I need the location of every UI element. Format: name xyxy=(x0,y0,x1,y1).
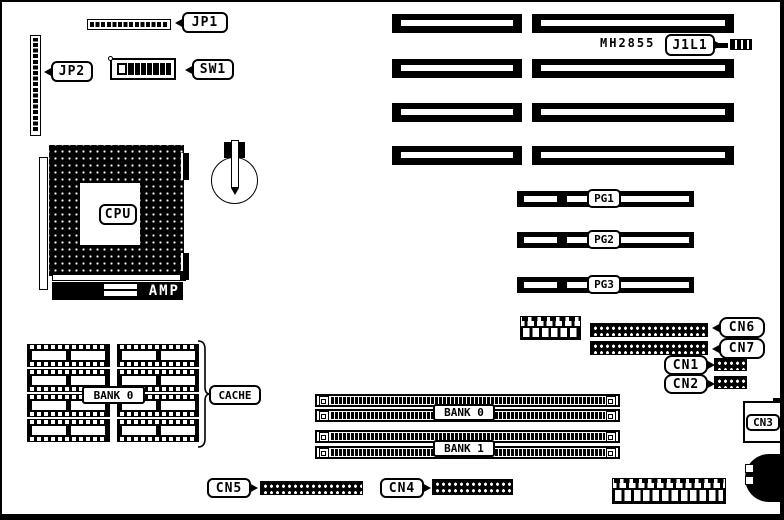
sw1-switch-off xyxy=(117,63,127,75)
sw1-switch xyxy=(147,63,152,75)
power-body xyxy=(613,488,725,503)
cache-chip xyxy=(122,426,156,435)
amp-top-bar xyxy=(52,274,183,281)
pg-stripe xyxy=(621,237,689,243)
cn5-header xyxy=(260,481,363,495)
jp2-label-text: JP2 xyxy=(59,64,85,79)
simm-bank1-label-text: BANK 1 xyxy=(444,442,484,455)
cpu-label-text: CPU xyxy=(105,207,131,222)
sw1-switch xyxy=(153,63,158,75)
expansion-slot xyxy=(532,59,734,78)
cache-chip xyxy=(32,401,66,410)
cn7-header xyxy=(590,341,708,355)
cache-chip xyxy=(161,351,195,360)
cn5-label-text: CN5 xyxy=(216,481,242,496)
simm-bank0-label-text: BANK 0 xyxy=(444,406,484,419)
simm-bank0-label: BANK 0 xyxy=(433,404,495,421)
pg1-label: PG1 xyxy=(587,189,621,208)
cache-bank0-label: BANK 0 xyxy=(82,386,145,404)
cn4-label: CN4 xyxy=(380,478,424,498)
sw1-switch xyxy=(141,63,146,75)
sw1-switch xyxy=(160,63,165,75)
cache-chip xyxy=(71,376,105,385)
pg3-label-text: PG3 xyxy=(594,278,614,291)
jp1-label-text: JP1 xyxy=(192,15,218,30)
amp-text: AMP xyxy=(149,283,180,299)
expansion-slot xyxy=(392,146,522,165)
sw1-switch xyxy=(166,63,171,75)
cpu-side-bar xyxy=(39,157,48,290)
pg3-label: PG3 xyxy=(587,275,621,294)
simm-latch-left xyxy=(319,448,329,458)
simm-contacts xyxy=(330,397,605,404)
cn5-pointer xyxy=(249,483,258,493)
cache-chip xyxy=(71,351,105,360)
j1l1-pointer xyxy=(713,40,722,50)
jp2-pointer xyxy=(44,67,53,77)
cn1-label-text: CN1 xyxy=(673,358,699,373)
cache-chip xyxy=(32,351,66,360)
cn2-header xyxy=(714,376,747,389)
sw1-dip-switch xyxy=(110,58,176,80)
simm-latch-right xyxy=(606,396,616,406)
cn7-label: CN7 xyxy=(719,338,765,359)
cpu-tab-top xyxy=(181,153,189,180)
power-connector-main xyxy=(612,478,726,504)
cn3-label-text: CN3 xyxy=(753,416,773,429)
motherboard-diagram: JP1 JP2 SW1 CPU AMP xyxy=(0,0,784,520)
battery-pin-tip xyxy=(231,188,239,195)
cache-bank0-label-text: BANK 0 xyxy=(94,389,134,402)
sw1-label-text: SW1 xyxy=(200,62,226,77)
cn5-label: CN5 xyxy=(207,478,251,498)
expansion-slot xyxy=(532,14,734,33)
pg-stripe xyxy=(524,282,557,288)
power-pins xyxy=(613,479,725,488)
cn4-header xyxy=(432,479,513,495)
cn2-pointer xyxy=(706,379,715,389)
cache-chip xyxy=(161,376,195,385)
cache-brace xyxy=(196,339,210,449)
pg-stripe xyxy=(524,196,557,202)
expansion-slot xyxy=(392,59,522,78)
din-hole xyxy=(745,464,754,473)
sw1-switch xyxy=(128,63,133,75)
cn3-label: CN3 xyxy=(746,414,780,431)
cn7-pointer xyxy=(712,344,721,354)
cache-label-text: CACHE xyxy=(218,389,251,402)
pg-stripe xyxy=(524,237,557,243)
amp-notch xyxy=(180,271,186,281)
cn6-label: CN6 xyxy=(719,317,765,338)
cache-chip xyxy=(161,426,195,435)
j1l1-connector xyxy=(730,39,752,50)
cpu-label: CPU xyxy=(99,204,137,225)
pg-stripe xyxy=(621,282,689,288)
battery-pin xyxy=(231,140,239,188)
simm-latch-left xyxy=(319,432,329,442)
cache-chip-block xyxy=(27,419,110,442)
cache-chip xyxy=(122,351,156,360)
cn6-pointer xyxy=(712,323,721,333)
expansion-slot xyxy=(392,14,522,33)
cache-chip xyxy=(71,426,105,435)
sw1-label: SW1 xyxy=(192,59,234,80)
simm-latch-right xyxy=(606,432,616,442)
power-connector-small xyxy=(520,316,581,340)
cache-chip-block xyxy=(117,344,199,367)
jp1-pin-strip xyxy=(87,19,171,30)
sw1-switch xyxy=(135,63,140,75)
pg-stripe xyxy=(567,282,588,288)
simm-latch-right xyxy=(606,411,616,421)
j1l1-label: J1L1 xyxy=(665,34,715,56)
expansion-slot xyxy=(532,103,734,122)
simm-latch-left xyxy=(319,396,329,406)
pg2-label-text: PG2 xyxy=(594,233,614,246)
pg-stripe xyxy=(567,196,588,202)
pg1-label-text: PG1 xyxy=(594,192,614,205)
amp-stripe xyxy=(104,284,137,289)
cn6-header xyxy=(590,323,708,337)
pg2-label: PG2 xyxy=(587,230,621,249)
sw1-pin1-dot xyxy=(108,56,113,61)
jp2-pin-strip xyxy=(30,35,41,136)
cn1-header xyxy=(714,358,747,371)
cn2-label: CN2 xyxy=(664,374,708,394)
cache-chip xyxy=(32,376,66,385)
cn4-label-text: CN4 xyxy=(389,481,415,496)
sw1-pointer xyxy=(185,65,194,75)
cn7-label-text: CN7 xyxy=(729,341,755,356)
cache-chip xyxy=(122,376,156,385)
chip-mh2855-text: MH2855 xyxy=(600,36,655,50)
j1l1-label-text: J1L1 xyxy=(672,38,707,53)
cache-chip xyxy=(161,401,195,410)
simm-contacts xyxy=(330,433,605,440)
simm-latch-left xyxy=(319,411,329,421)
pg-stripe xyxy=(621,196,689,202)
simm-latch-right xyxy=(606,448,616,458)
expansion-slot xyxy=(392,103,522,122)
cn1-pointer xyxy=(706,360,715,370)
amp-regulator: AMP xyxy=(52,282,183,300)
cache-chip-block xyxy=(117,419,199,442)
power-body xyxy=(521,326,580,339)
amp-stripe xyxy=(104,291,137,296)
power-pins xyxy=(521,317,580,326)
simm-bank1-label: BANK 1 xyxy=(433,440,495,457)
cn4-pointer xyxy=(422,483,431,493)
pg-stripe xyxy=(567,237,588,243)
cache-chip xyxy=(32,426,66,435)
cache-chip-block xyxy=(27,344,110,367)
jp1-label: JP1 xyxy=(182,12,228,33)
expansion-slot xyxy=(532,146,734,165)
cache-label: CACHE xyxy=(209,385,261,405)
din-hole xyxy=(745,476,754,485)
jp2-label: JP2 xyxy=(51,61,93,82)
cn6-label-text: CN6 xyxy=(729,320,755,335)
jp1-pointer xyxy=(175,18,184,28)
cn2-label-text: CN2 xyxy=(673,377,699,392)
cn1-label: CN1 xyxy=(664,355,708,375)
